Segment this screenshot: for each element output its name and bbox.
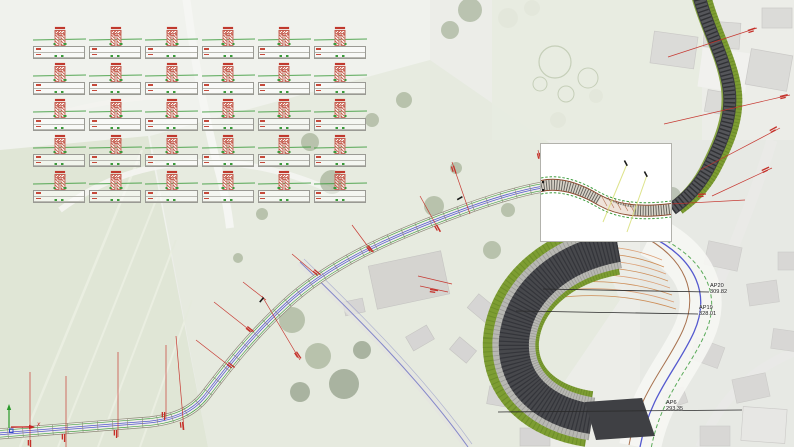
detail-callout-box[interactable] bbox=[540, 143, 672, 242]
ap-station: 293.35 bbox=[666, 406, 683, 412]
ucs-x-axis-label: x bbox=[37, 421, 40, 428]
ap-station: 309.82 bbox=[710, 289, 727, 295]
axis-point-label-ap6: AP6 293.35 bbox=[666, 400, 683, 412]
interchange-ramp bbox=[511, 247, 618, 419]
plan-canvas[interactable]: AP20 309.82 AP19 328.01 AP6 293.35 x bbox=[0, 0, 794, 447]
north-road bbox=[665, 0, 738, 210]
bridge-detail-drawing bbox=[541, 144, 671, 241]
ap-station: 328.01 bbox=[699, 311, 716, 317]
crossing-street bbox=[300, 259, 472, 447]
design-overlay bbox=[0, 0, 794, 447]
axis-point-label-ap20: AP20 309.82 bbox=[710, 283, 727, 295]
main-alignment bbox=[0, 187, 543, 434]
station-ticks bbox=[8, 185, 532, 439]
axis-point-label-ap19: AP19 328.01 bbox=[699, 305, 716, 317]
